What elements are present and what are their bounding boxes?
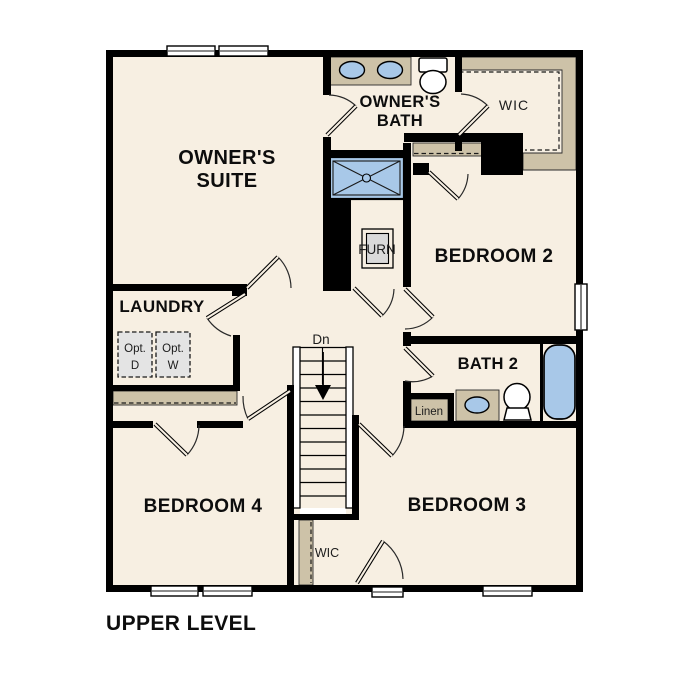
opt-washer-label-line1: Opt.: [162, 343, 184, 355]
bedroom2-label: BEDROOM 2: [435, 246, 554, 267]
linen-label: Linen: [415, 406, 443, 418]
bedroom4-label: BEDROOM 4: [144, 496, 263, 517]
bedroom3-label: BEDROOM 3: [408, 495, 527, 516]
plan-title: UPPER LEVEL: [106, 612, 256, 635]
sink-icon: [378, 62, 403, 79]
stair-stringer: [346, 347, 353, 508]
bathtub-icon: [544, 345, 575, 419]
owners-suite-label-line1: OWNER'S: [178, 147, 276, 169]
window: [167, 46, 215, 56]
opt-dryer-label-line2: D: [131, 360, 139, 372]
bath2-label: BATH 2: [458, 355, 519, 373]
floor-plan-drawing: OWNER'S SUITE OWNER'S BATH WIC BEDROOM 2…: [0, 0, 687, 687]
opt-dryer-label-line1: Opt.: [124, 343, 146, 355]
toilet-icon: [504, 384, 531, 421]
stair-stringer: [293, 347, 300, 508]
sink-icon: [340, 62, 365, 79]
laundry-label: LAUNDRY: [119, 297, 205, 316]
window: [575, 284, 587, 330]
opt-washer-label-line2: W: [168, 360, 179, 372]
furnace-label: FURN: [358, 242, 396, 257]
window: [151, 586, 198, 596]
wic-upper-label: WIC: [499, 97, 529, 113]
window: [372, 587, 403, 597]
owners-bath-label-line2: BATH: [377, 112, 423, 130]
owners-bath-label-line1: OWNER'S: [360, 93, 441, 111]
floor-plan-page: OWNER'S SUITE OWNER'S BATH WIC BEDROOM 2…: [0, 0, 687, 687]
window: [219, 46, 268, 56]
sink-icon: [465, 397, 489, 413]
shower-icon: [329, 157, 404, 199]
owners-suite-label-line2: SUITE: [197, 170, 258, 192]
stairs-down-label: Dn: [312, 332, 329, 347]
stair-landing: [300, 508, 346, 515]
wic-lower-label: WIC: [315, 546, 339, 560]
window: [203, 586, 252, 596]
window: [483, 586, 532, 596]
toilet-icon: [419, 58, 447, 94]
